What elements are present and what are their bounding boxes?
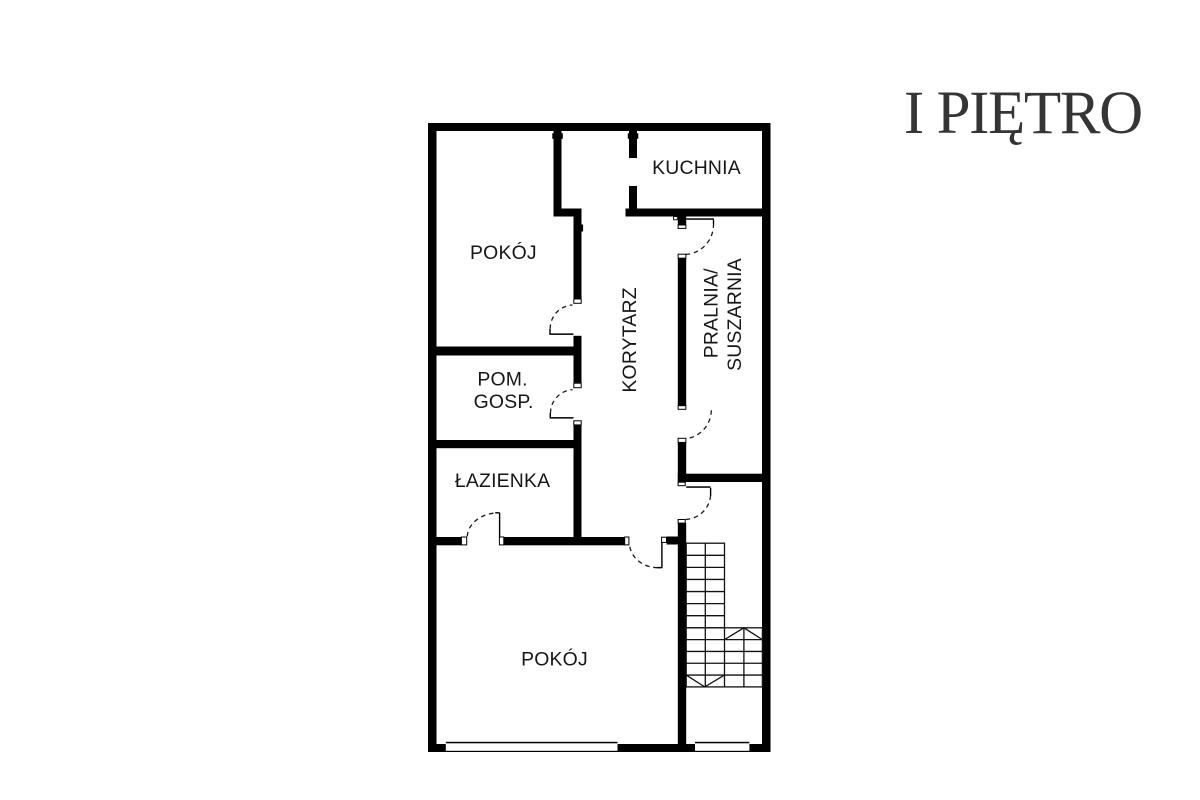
svg-text:KORYTARZ: KORYTARZ <box>619 287 641 392</box>
svg-text:SUSZARNIA: SUSZARNIA <box>724 258 746 371</box>
svg-text:POM.: POM. <box>477 368 527 390</box>
svg-text:POKÓJ: POKÓJ <box>521 647 588 670</box>
svg-text:POKÓJ: POKÓJ <box>470 241 537 264</box>
svg-text:KUCHNIA: KUCHNIA <box>652 157 741 179</box>
svg-text:I PIĘTRO: I PIĘTRO <box>904 80 1142 147</box>
svg-text:GOSP.: GOSP. <box>474 391 534 413</box>
svg-text:PRALNIA/: PRALNIA/ <box>701 268 723 358</box>
svg-text:ŁAZIENKA: ŁAZIENKA <box>455 470 550 492</box>
